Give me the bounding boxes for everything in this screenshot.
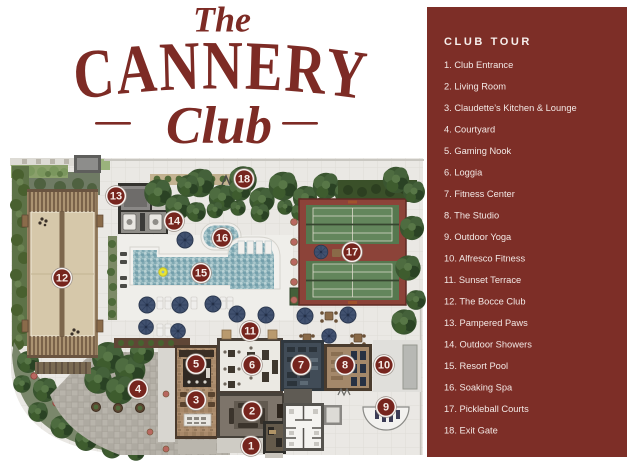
svg-text:8. The Studio: 8. The Studio (444, 211, 499, 221)
svg-text:1: 1 (248, 441, 254, 453)
svg-text:The: The (193, 0, 251, 40)
svg-text:15. Resort Pool: 15. Resort Pool (444, 361, 508, 371)
svg-text:7. Fitness Center: 7. Fitness Center (444, 189, 515, 199)
svg-text:12. The Bocce Club: 12. The Bocce Club (444, 297, 525, 307)
svg-text:5. Gaming Nook: 5. Gaming Nook (444, 146, 512, 156)
svg-text:11. Sunset Terrace: 11. Sunset Terrace (444, 275, 521, 285)
svg-text:4: 4 (135, 384, 142, 396)
svg-text:7: 7 (298, 360, 304, 372)
svg-text:5: 5 (193, 359, 199, 371)
svg-text:14. Outdoor Showers: 14. Outdoor Showers (444, 340, 532, 350)
svg-text:6. Loggia: 6. Loggia (444, 168, 483, 178)
svg-text:11: 11 (244, 326, 256, 338)
svg-text:17: 17 (346, 247, 358, 259)
svg-text:Club: Club (166, 97, 272, 155)
svg-text:13. Pampered Paws: 13. Pampered Paws (444, 318, 528, 328)
svg-text:9. Outdoor Yoga: 9. Outdoor Yoga (444, 232, 512, 242)
svg-text:6: 6 (249, 360, 255, 372)
svg-text:2. Living Room: 2. Living Room (444, 82, 506, 92)
svg-text:16. Soaking Spa: 16. Soaking Spa (444, 383, 513, 393)
svg-text:15: 15 (195, 268, 207, 280)
svg-text:12: 12 (56, 273, 68, 285)
svg-text:8: 8 (342, 360, 348, 372)
svg-text:16: 16 (216, 233, 228, 245)
svg-text:3: 3 (193, 395, 199, 407)
svg-text:CLUB TOUR: CLUB TOUR (444, 36, 532, 48)
svg-text:9: 9 (383, 402, 389, 414)
svg-text:14: 14 (168, 216, 181, 228)
svg-text:2: 2 (249, 406, 255, 418)
svg-text:10: 10 (378, 360, 390, 372)
svg-text:4. Courtyard: 4. Courtyard (444, 125, 495, 135)
svg-text:13: 13 (110, 191, 122, 203)
svg-text:18: 18 (238, 174, 250, 186)
svg-text:18. Exit Gate: 18. Exit Gate (444, 426, 498, 436)
svg-text:3. Claudette’s Kitchen & Loung: 3. Claudette’s Kitchen & Lounge (444, 103, 577, 113)
svg-text:1. Club Entrance: 1. Club Entrance (444, 60, 513, 70)
svg-text:17. Pickleball Courts: 17. Pickleball Courts (444, 404, 529, 414)
svg-text:10. Alfresco Fitness: 10. Alfresco Fitness (444, 254, 525, 264)
